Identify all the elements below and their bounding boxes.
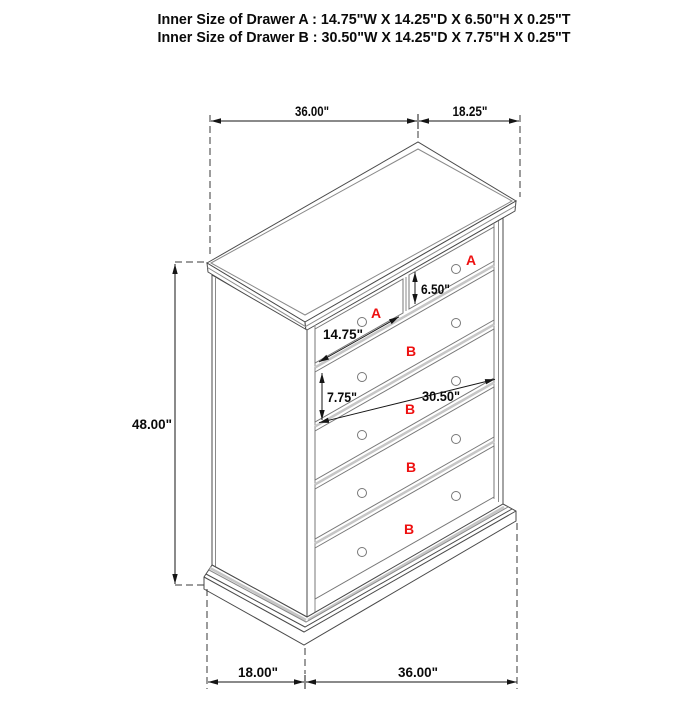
drawer-b-width-value: 30.50" <box>422 389 460 404</box>
top-width-value: 36.00" <box>295 104 329 119</box>
knob-b2-left <box>358 431 367 440</box>
top-depth-value: 18.25" <box>453 104 488 119</box>
drawer-b-spec-text: Inner Size of Drawer B : 30.50"W X 14.25… <box>158 29 571 46</box>
label-drawer-b3: B <box>406 459 416 475</box>
knob-a-left <box>358 318 367 327</box>
drawer-a-height-value: 6.50" <box>421 282 450 297</box>
drawer-a-width-value: 14.75" <box>323 327 363 342</box>
height-value: 48.00" <box>132 417 172 432</box>
knob-b3-left <box>358 489 367 498</box>
bottom-depth-value: 18.00" <box>238 665 278 680</box>
knob-b2-right <box>452 377 461 386</box>
knob-b4-left <box>358 548 367 557</box>
bottom-width-value: 36.00" <box>398 665 438 680</box>
drawer-a-spec-text: Inner Size of Drawer A : 14.75"W X 14.25… <box>158 11 571 28</box>
label-drawer-b2: B <box>405 401 415 417</box>
dimension-diagram: Inner Size of Drawer A : 14.75"W X 14.25… <box>0 0 700 700</box>
drawer-b-height-value: 7.75" <box>327 390 357 405</box>
label-drawer-b4: B <box>404 521 414 537</box>
knob-b4-right <box>452 492 461 501</box>
label-drawer-a-right: A <box>466 252 476 268</box>
chest-dimension-drawing: Inner Size of Drawer A : 14.75"W X 14.25… <box>0 0 700 700</box>
knob-b1-left <box>358 373 367 382</box>
label-drawer-b1: B <box>406 343 416 359</box>
side-face <box>212 275 307 617</box>
label-drawer-a-left: A <box>371 305 381 321</box>
knob-a-right <box>452 265 461 274</box>
knob-b3-right <box>452 435 461 444</box>
header: Inner Size of Drawer A : 14.75"W X 14.25… <box>158 11 571 46</box>
side-panel <box>212 275 307 617</box>
knob-b1-right <box>452 319 461 328</box>
